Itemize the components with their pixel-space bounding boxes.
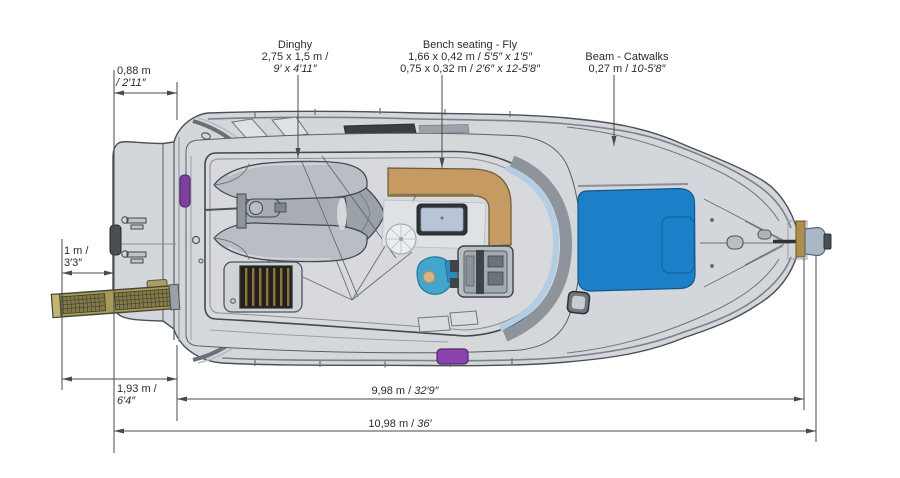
svg-text:0,88 m: 0,88 m <box>117 65 151 77</box>
svg-text:Beam - Catwalks: Beam - Catwalks <box>585 51 669 63</box>
svg-text:Bench seating - Fly: Bench seating - Fly <box>423 39 518 51</box>
svg-text:1 m /: 1 m / <box>64 245 89 257</box>
svg-text:1,93 m /: 1,93 m / <box>117 383 158 395</box>
svg-text:/ 2′11″: / 2′11″ <box>115 77 147 89</box>
svg-text:9,98 m / 32′9″: 9,98 m / 32′9″ <box>371 385 439 397</box>
svg-text:6′4″: 6′4″ <box>117 395 136 407</box>
svg-text:10,98 m / 36′: 10,98 m / 36′ <box>368 418 432 430</box>
svg-text:9′ x 4′11″: 9′ x 4′11″ <box>273 63 317 75</box>
svg-text:3′3″: 3′3″ <box>64 257 82 269</box>
svg-text:0,27 m / 10-5′8″: 0,27 m / 10-5′8″ <box>589 63 667 75</box>
svg-text:2,75 x 1,5 m /: 2,75 x 1,5 m / <box>262 51 330 63</box>
svg-text:0,75 x 0,32 m / 2′6″ x 12-5′8″: 0,75 x 0,32 m / 2′6″ x 12-5′8″ <box>400 63 541 75</box>
svg-text:Dinghy: Dinghy <box>278 39 313 51</box>
svg-text:1,66 x 0,42 m / 5′5″ x 1′5″: 1,66 x 0,42 m / 5′5″ x 1′5″ <box>408 51 533 63</box>
